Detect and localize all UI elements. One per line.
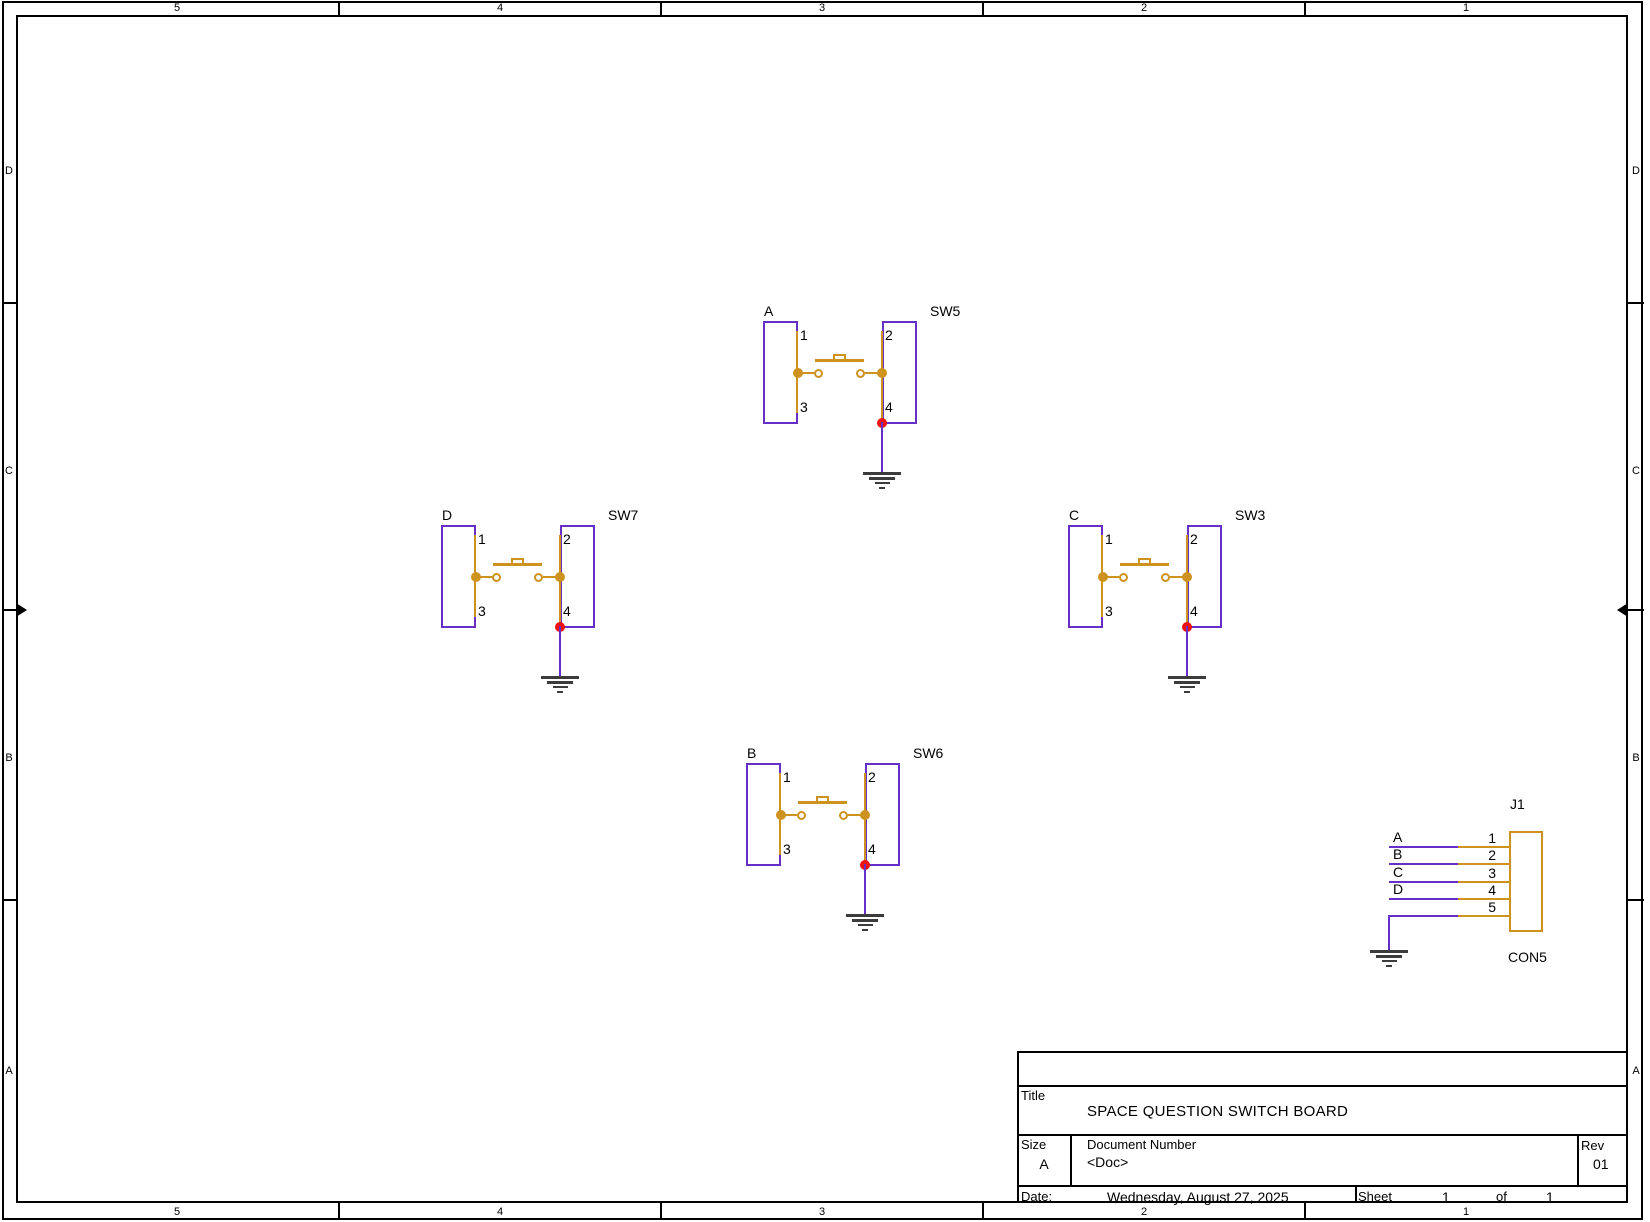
ground-symbol[interactable] <box>863 472 901 490</box>
frame-tick <box>338 1 340 15</box>
ground-wire[interactable] <box>881 422 883 473</box>
title-label: Title <box>1021 1089 1045 1103</box>
col-marker-top-5: 5 <box>157 1 197 15</box>
sheet-inner-border <box>16 15 1628 1203</box>
sheet-label: Sheet <box>1358 1190 1392 1204</box>
rev-label: Rev <box>1581 1139 1604 1153</box>
title-block-divider <box>1019 1134 1626 1136</box>
title-block-divider <box>1355 1185 1357 1201</box>
pin-number-2: 2 <box>1190 532 1198 546</box>
row-marker-left-b: B <box>2 751 16 765</box>
frame-tick <box>2 899 16 901</box>
contact-lead-right <box>865 372 882 374</box>
contact-circle-left <box>814 369 823 378</box>
title-block-divider <box>1070 1134 1072 1187</box>
contact-circle-right <box>534 573 543 582</box>
refdes-label[interactable]: SW5 <box>930 304 960 318</box>
contact-lead-left <box>781 814 797 816</box>
contact-lead-left <box>476 576 492 578</box>
net-label[interactable]: D <box>442 508 452 522</box>
contact-circle-right <box>1161 573 1170 582</box>
net-label[interactable]: C <box>1069 508 1079 522</box>
contact-circle-right <box>839 811 848 820</box>
ground-wire-vertical[interactable] <box>1388 915 1390 950</box>
contact-lead-right <box>1170 576 1187 578</box>
pin-number-2: 2 <box>885 328 893 342</box>
pin-number-1: 1 <box>800 328 808 342</box>
col-marker-bottom-1: 1 <box>1446 1205 1486 1219</box>
switch-sw3[interactable]: C SW3 1 2 3 4 <box>1068 525 1358 700</box>
contact-lead-left <box>1103 576 1119 578</box>
row-marker-left-c: C <box>2 464 16 478</box>
pin-number-3: 3 <box>1478 866 1496 880</box>
button-actuator <box>1138 558 1151 565</box>
row-marker-right-b: B <box>1629 751 1643 765</box>
pin-number-3: 3 <box>478 604 486 618</box>
pin-number-4: 4 <box>563 604 571 618</box>
ground-symbol[interactable] <box>846 914 884 932</box>
title-block-divider <box>1019 1185 1626 1187</box>
col-marker-top-2: 2 <box>1124 1 1164 15</box>
center-arrow-line-right <box>1628 609 1644 611</box>
pin-number-1: 1 <box>1478 831 1496 845</box>
ground-wire[interactable] <box>559 626 561 677</box>
frame-tick <box>1628 302 1644 304</box>
row-marker-right-a: A <box>1629 1064 1643 1078</box>
ground-symbol[interactable] <box>541 676 579 694</box>
frame-tick <box>1304 1 1306 15</box>
contact-lead-right <box>848 814 865 816</box>
switch-sw5[interactable]: A SW5 1 2 3 4 <box>763 321 1053 496</box>
size-label: Size <box>1021 1138 1046 1152</box>
contact-lead-left <box>798 372 814 374</box>
contact-circle-left <box>492 573 501 582</box>
connector-pin-5[interactable] <box>1458 915 1509 917</box>
sheet-number: 1 <box>1442 1190 1450 1204</box>
col-marker-top-3: 3 <box>802 1 842 15</box>
refdes-label-j1[interactable]: J1 <box>1510 797 1525 811</box>
col-marker-bottom-4: 4 <box>480 1205 520 1219</box>
col-marker-bottom-2: 2 <box>1124 1205 1164 1219</box>
connector-body[interactable] <box>1509 831 1543 932</box>
contact-lead-right <box>543 576 560 578</box>
title-block-divider <box>1577 1134 1579 1187</box>
frame-tick <box>1628 899 1644 901</box>
sheet-total: 1 <box>1546 1190 1554 1204</box>
connector-pin-2[interactable] <box>1458 863 1509 865</box>
center-arrow-left-icon <box>16 603 27 617</box>
refdes-label[interactable]: SW7 <box>608 508 638 522</box>
net-wire-d[interactable] <box>1389 898 1458 900</box>
contact-circle-left <box>797 811 806 820</box>
center-arrow-right-icon <box>1617 603 1628 617</box>
switch-sw7[interactable]: D SW7 1 2 3 4 <box>441 525 731 700</box>
frame-tick <box>982 1203 984 1220</box>
sheet-title: SPACE QUESTION SWITCH BOARD <box>1087 1104 1348 1119</box>
pin-number-4: 4 <box>1478 883 1496 897</box>
frame-tick <box>338 1203 340 1220</box>
frame-tick <box>1304 1203 1306 1220</box>
row-marker-left-a: A <box>2 1064 16 1078</box>
pin-number-4: 4 <box>868 842 876 856</box>
button-actuator <box>833 354 846 361</box>
net-label[interactable]: A <box>764 304 773 318</box>
pin-number-4: 4 <box>1190 604 1198 618</box>
ground-symbol[interactable] <box>1370 950 1408 968</box>
refdes-label[interactable]: SW6 <box>913 746 943 760</box>
size-value: A <box>1019 1157 1069 1171</box>
pin-number-4: 4 <box>885 400 893 414</box>
pin-number-1: 1 <box>478 532 486 546</box>
net-label[interactable]: A <box>1393 830 1402 844</box>
pin-number-2: 2 <box>868 770 876 784</box>
ground-wire[interactable] <box>864 864 866 915</box>
net-label[interactable]: B <box>1393 847 1402 861</box>
ground-wire[interactable] <box>1186 626 1188 677</box>
title-block: Title SPACE QUESTION SWITCH BOARD Size A… <box>1017 1051 1628 1203</box>
sheet-of-label: of <box>1496 1190 1507 1204</box>
net-label[interactable]: C <box>1393 865 1403 879</box>
col-marker-top-4: 4 <box>480 1 520 15</box>
button-actuator <box>511 558 524 565</box>
row-marker-right-c: C <box>1629 464 1643 478</box>
part-value-label[interactable]: CON5 <box>1508 950 1547 964</box>
center-arrow-line-left <box>2 609 16 611</box>
pin-number-2: 2 <box>1478 848 1496 862</box>
ground-wire-horizontal[interactable] <box>1389 915 1458 917</box>
refdes-label[interactable]: SW3 <box>1235 508 1265 522</box>
title-block-divider <box>1019 1085 1626 1087</box>
net-label[interactable]: B <box>747 746 756 760</box>
frame-tick <box>982 1 984 15</box>
ground-symbol[interactable] <box>1168 676 1206 694</box>
frame-tick <box>2 302 16 304</box>
document-number-value: <Doc> <box>1087 1155 1128 1169</box>
col-marker-bottom-3: 3 <box>802 1205 842 1219</box>
frame-tick <box>660 1 662 15</box>
pin-number-3: 3 <box>1105 604 1113 618</box>
pin-number-1: 1 <box>1105 532 1113 546</box>
document-number-label: Document Number <box>1087 1138 1196 1152</box>
row-marker-right-d: D <box>1629 164 1643 178</box>
col-marker-top-1: 1 <box>1446 1 1486 15</box>
net-label[interactable]: D <box>1393 882 1403 896</box>
frame-tick <box>660 1203 662 1220</box>
pin-number-2: 2 <box>563 532 571 546</box>
pin-number-3: 3 <box>800 400 808 414</box>
date-label: Date: <box>1021 1190 1052 1204</box>
col-marker-bottom-5: 5 <box>157 1205 197 1219</box>
schematic-page: 5 4 3 2 1 5 4 3 2 1 D C B A D C B A A SW… <box>0 0 1650 1222</box>
contact-circle-left <box>1119 573 1128 582</box>
date-value: Wednesday, August 27, 2025 <box>1107 1190 1289 1204</box>
contact-circle-right <box>856 369 865 378</box>
rev-value: 01 <box>1593 1157 1609 1171</box>
switch-sw6[interactable]: B SW6 1 2 3 4 <box>746 763 1036 938</box>
button-actuator <box>816 796 829 803</box>
row-marker-left-d: D <box>2 164 16 178</box>
pin-number-1: 1 <box>783 770 791 784</box>
pin-number-3: 3 <box>783 842 791 856</box>
pin-number-5: 5 <box>1478 900 1496 914</box>
